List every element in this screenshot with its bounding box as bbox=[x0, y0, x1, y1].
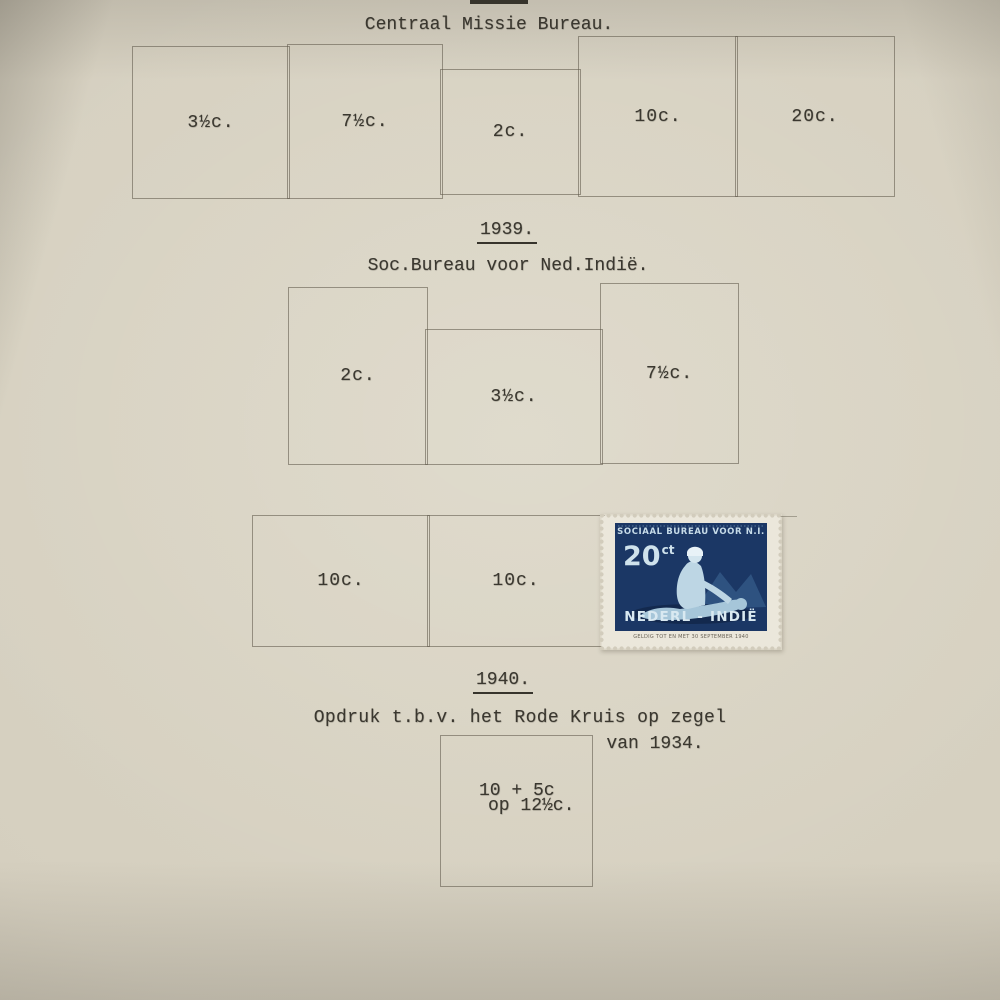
denomination-label: 7½c. bbox=[341, 112, 388, 132]
stamp-validity-text: GELDIG TOT EN MET 30 SEPTEMBER 1940 bbox=[610, 634, 772, 640]
denomination-label: 20c. bbox=[791, 107, 838, 127]
stamp-nederlandsch-indie-20ct: SOCIAAL BUREAU VOOR N.I. 20ct NEDERL - I… bbox=[600, 514, 782, 650]
section-1939-title: Soc.Bureau voor Ned.Indië. bbox=[368, 256, 649, 276]
surcharge-box-1940: 10 + 5c op 12½c. bbox=[440, 735, 593, 887]
cropped-year-underline bbox=[470, 0, 528, 4]
stamp-value: 20ct bbox=[623, 543, 673, 570]
placeholder-10c-left: 10c. bbox=[252, 515, 430, 647]
overprint-note-line2: van 1934. bbox=[606, 734, 703, 754]
placeholder-1939-3-5c: 3½c. bbox=[425, 329, 603, 465]
denomination-label: 3½c. bbox=[490, 387, 537, 407]
denomination-label: 2c. bbox=[493, 122, 528, 142]
denomination-label: 10c. bbox=[317, 571, 364, 591]
section-1938-title: Centraal Missie Bureau. bbox=[365, 15, 613, 35]
denomination-label: 7½c. bbox=[646, 364, 693, 384]
pencil-guide-line bbox=[780, 516, 797, 517]
placeholder-1938-2c: 2c. bbox=[440, 69, 581, 195]
album-page: Centraal Missie Bureau. 3½c. 7½c. 2c. 10… bbox=[0, 0, 1000, 1000]
stamp-header-text: SOCIAAL BUREAU VOOR N.I. bbox=[615, 527, 767, 537]
year-heading-1940: 1940. bbox=[473, 670, 533, 690]
denomination-label: 10c. bbox=[492, 571, 539, 591]
placeholder-1939-2c: 2c. bbox=[288, 287, 428, 465]
stamp-country-text: NEDERL - INDIË bbox=[615, 609, 767, 625]
year-heading-1939: 1939. bbox=[477, 220, 537, 240]
surcharge-line2: op 12½c. bbox=[488, 797, 574, 815]
placeholder-10c-right: 10c. bbox=[427, 515, 605, 647]
placeholder-1939-7-5c: 7½c. bbox=[600, 283, 739, 464]
placeholder-1938-3-5c: 3½c. bbox=[132, 46, 290, 199]
placeholder-1938-10c: 10c. bbox=[578, 36, 738, 197]
denomination-label: 3½c. bbox=[187, 113, 234, 133]
placeholder-1938-20c: 20c. bbox=[735, 36, 895, 197]
denomination-label: 10c. bbox=[634, 107, 681, 127]
placeholder-1938-7-5c: 7½c. bbox=[287, 44, 443, 199]
overprint-note-line1: Opdruk t.b.v. het Rode Kruis op zegel bbox=[314, 708, 727, 728]
denomination-label: 2c. bbox=[340, 366, 375, 386]
